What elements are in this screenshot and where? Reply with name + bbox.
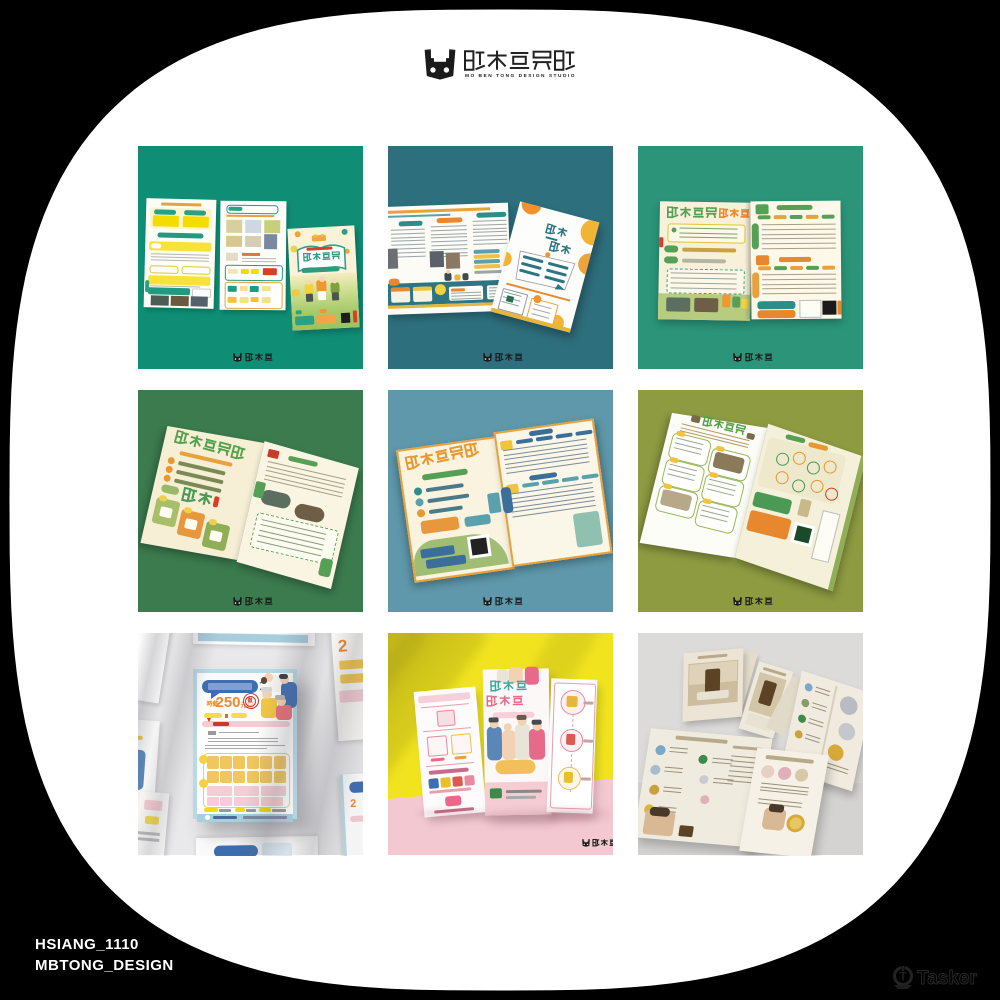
svg-text:T: T: [899, 970, 907, 984]
svg-text:Tasker: Tasker: [917, 968, 977, 989]
